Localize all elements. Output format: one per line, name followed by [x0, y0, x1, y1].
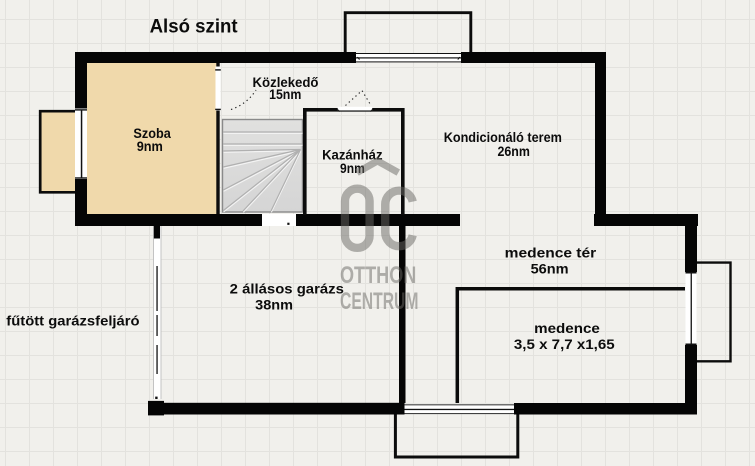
- svg-text:2 állásos garázs: 2 állásos garázs: [230, 281, 344, 297]
- svg-text:fűtött garázsfeljáró: fűtött garázsfeljáró: [6, 313, 139, 329]
- svg-text:CENTRUM: CENTRUM: [340, 287, 418, 315]
- svg-text:9nm: 9nm: [137, 138, 163, 154]
- svg-text:56nm: 56nm: [531, 261, 569, 277]
- svg-text:38nm: 38nm: [255, 297, 293, 313]
- svg-text:medence: medence: [534, 320, 600, 336]
- svg-text:medence tér: medence tér: [505, 244, 597, 260]
- svg-text:26nm: 26nm: [498, 143, 530, 159]
- svg-text:Alsó szint: Alsó szint: [150, 16, 239, 37]
- svg-text:3,5 x 7,7 x1,65: 3,5 x 7,7 x1,65: [514, 336, 615, 352]
- svg-text:OTTHON: OTTHON: [340, 261, 416, 289]
- svg-text:15nm: 15nm: [269, 86, 301, 102]
